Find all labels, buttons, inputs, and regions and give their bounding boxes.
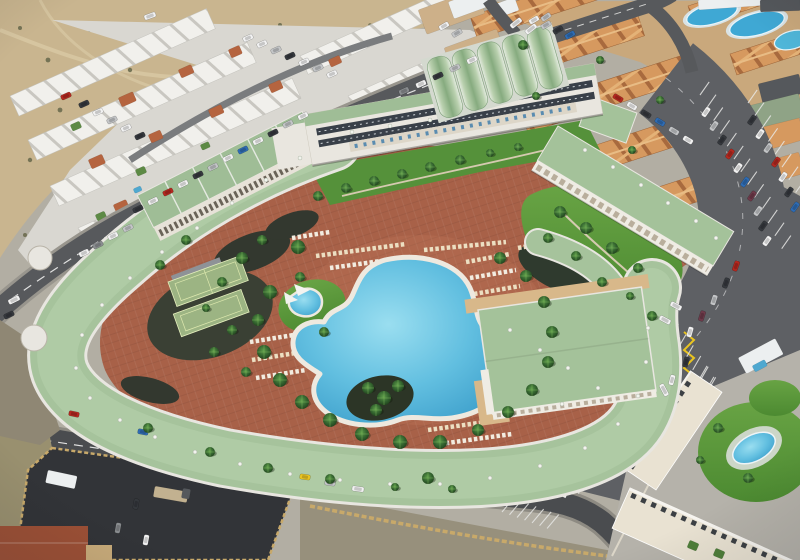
aerial-photo-stage: STOP xyxy=(0,0,800,560)
resort-aerial-scene: STOP xyxy=(0,0,800,560)
vignette-overlay xyxy=(0,0,800,560)
